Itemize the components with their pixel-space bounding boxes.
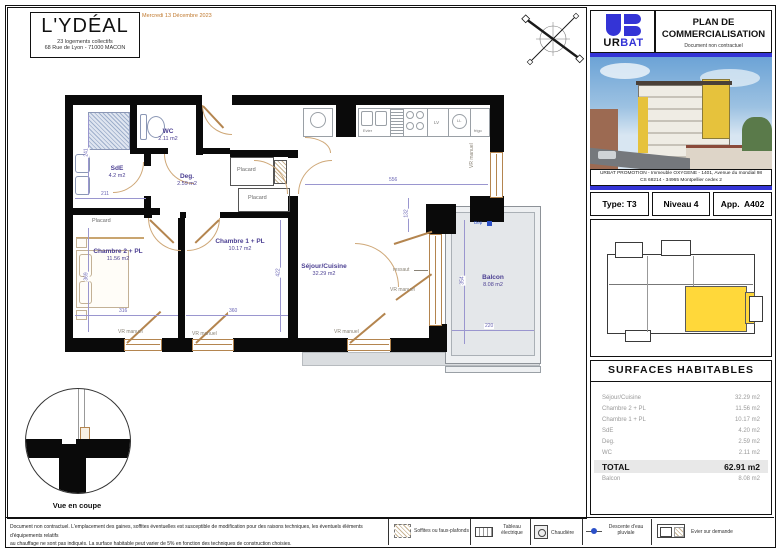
- room-label-balcon: Balcon8.08 m2: [468, 274, 518, 289]
- dimension-label: 556: [388, 178, 398, 183]
- balcony-lower-ledge: [445, 366, 541, 373]
- counter-divider: [427, 108, 428, 137]
- cooktop-burner: [416, 111, 424, 119]
- doc-title-box: PLAN DE COMMERCIALISATION Document non c…: [655, 10, 772, 53]
- downpipe-dot: [591, 528, 597, 534]
- key-room-line: [647, 256, 648, 332]
- dimension-label: 211: [100, 192, 110, 197]
- dishwasher-label: LV: [434, 121, 439, 126]
- wall: [65, 95, 202, 105]
- building-photo: [590, 57, 772, 169]
- surface-row-balcony: Balcon8.08 m2: [602, 476, 760, 487]
- cooktop-burner: [406, 111, 414, 119]
- plan-date: Mercredi 13 Décembre 2023: [142, 13, 212, 19]
- urbat-logo-icon: [606, 14, 642, 36]
- dimension-label: 132: [405, 208, 410, 218]
- vr-label: VR manuel: [334, 330, 359, 335]
- dimension-label: 354: [461, 275, 466, 285]
- section-detail-circle: [25, 388, 131, 494]
- cloud: [600, 63, 650, 79]
- sink-bowl: [361, 111, 373, 126]
- dimension-label: 369: [85, 271, 90, 281]
- downpipe-label: Dep: [474, 221, 482, 226]
- electrical-panel-legend-icon: [475, 527, 493, 537]
- key-plan-box: [590, 219, 772, 357]
- dimension-line: [75, 315, 178, 316]
- fridge-label: frigo: [474, 129, 482, 133]
- window-line: [194, 344, 232, 345]
- window-line: [349, 344, 389, 345]
- placard-label: Placard: [237, 167, 256, 173]
- room-label-wc: WC2.11 m2: [148, 128, 188, 143]
- key-wing: [615, 242, 643, 258]
- boiler-legend-icon: [534, 525, 548, 539]
- downpipe-marker: [487, 221, 492, 226]
- vr-label: VR manuel: [470, 143, 475, 168]
- boiler-icon: [310, 112, 326, 128]
- wall: [490, 95, 504, 152]
- sink-basin: [660, 527, 672, 537]
- section-frame-line: [78, 389, 79, 439]
- building-roof: [636, 81, 732, 85]
- wall: [65, 95, 73, 352]
- counter-divider: [448, 108, 449, 137]
- cooktop-burner: [416, 122, 424, 130]
- wall: [162, 338, 193, 352]
- wall: [220, 212, 290, 218]
- section-slab: [26, 439, 130, 458]
- sink-bowl: [375, 111, 387, 126]
- title-block: L'YDÉAL 23 logements collectifs 68 Rue d…: [30, 12, 140, 58]
- logo-b-shape: [624, 26, 641, 36]
- wall: [233, 338, 348, 352]
- counter-divider: [470, 108, 471, 137]
- dimension-line: [305, 184, 488, 185]
- room-label-ch1: Chambre 1 + PL10.17 m2: [202, 238, 278, 253]
- wall: [470, 196, 504, 222]
- key-plan-drawing: [597, 226, 765, 350]
- boiler-circle: [538, 529, 546, 537]
- window-line: [126, 344, 160, 345]
- logo-box: URBAT: [590, 10, 655, 53]
- vr-label: VR manuel: [118, 330, 143, 335]
- key-corridor-line: [609, 284, 753, 285]
- dimension-label: 360: [228, 309, 238, 314]
- wall: [65, 338, 125, 352]
- ressaut-label: ressaut: [393, 268, 409, 273]
- legend-label: Evier sur demande: [691, 529, 761, 535]
- nightstand: [76, 238, 87, 248]
- unit-app-cell: App. A402: [713, 192, 772, 216]
- compass-icon: [518, 10, 588, 68]
- unit-type-cell: Type: T3: [590, 192, 649, 216]
- sink-label: Evier: [363, 129, 372, 133]
- legend-divider: [582, 519, 583, 545]
- urbat-wordmark: URBAT: [591, 37, 656, 49]
- dimension-line: [75, 198, 146, 199]
- legend-divider: [530, 519, 531, 545]
- surface-total-row: TOTAL 62.91 m2: [594, 460, 768, 473]
- photo-caption: URBAT PROMOTION - Immeuble OXYGENE - 140…: [590, 169, 772, 186]
- legend-label: Chaudière: [551, 530, 581, 536]
- wall: [429, 324, 447, 350]
- building-yellow-wing: [638, 97, 648, 153]
- surfaces-title: SURFACES HABITABLES: [591, 361, 771, 382]
- section-wall-stem: [59, 458, 86, 494]
- wall: [144, 152, 151, 166]
- logo-b-shape: [624, 14, 641, 24]
- wall: [130, 105, 137, 150]
- vr-label: VR manuel: [390, 288, 415, 293]
- key-wing: [661, 240, 691, 256]
- dimension-label: 422: [277, 267, 282, 277]
- doc-note: Document non contractuel: [656, 43, 771, 49]
- key-unit-highlight: [685, 286, 747, 332]
- window-line: [435, 236, 436, 324]
- room-label-sejour: Séjour/Cuisine32.29 m2: [288, 263, 360, 278]
- legend-label: Tableau électrique: [497, 524, 527, 537]
- cooktop-burner: [406, 122, 414, 130]
- pillow: [79, 281, 92, 304]
- surface-row: Séjour/Cuisine32.29 m2: [602, 395, 760, 406]
- washer-label: LL: [457, 119, 461, 123]
- ressaut-leader: [414, 270, 428, 271]
- page-title: L'YDÉAL: [31, 15, 139, 38]
- footer-separator: [6, 517, 774, 518]
- dimension-label: 241: [85, 147, 90, 157]
- dimension-label: 316: [118, 309, 128, 314]
- wall: [232, 95, 504, 105]
- legend-divider: [651, 519, 652, 545]
- car: [598, 151, 616, 159]
- surface-row: SdE4.20 m2: [602, 428, 760, 439]
- separator-bar: [590, 186, 772, 190]
- soffit-swatch-icon: [394, 524, 411, 538]
- room-label-deg: Deg.2.59 m2: [162, 173, 212, 188]
- greenery: [742, 117, 772, 151]
- dimension-line: [186, 315, 288, 316]
- room-label-ch2: Chambre 2 + PL11.56 m2: [82, 248, 154, 263]
- shower-tray: [88, 112, 130, 150]
- footer-disclaimer: Document non contractuel. L'emplacement …: [10, 523, 382, 549]
- wall: [336, 105, 356, 137]
- legend-divider: [388, 519, 389, 545]
- section-caption: Vue en coupe: [25, 501, 129, 510]
- dimension-label: 220: [484, 324, 494, 329]
- legend-label: Soffites ou faux-plafonds: [414, 528, 470, 534]
- surface-row: Deg.2.59 m2: [602, 439, 760, 450]
- project-address: 68 Rue de Lyon - 71000 MACON: [31, 45, 139, 51]
- placard-label: Placard: [92, 218, 111, 224]
- sink-legend-icon: [657, 524, 685, 538]
- doc-title: PLAN DE COMMERCIALISATION: [656, 17, 771, 41]
- window-line: [496, 154, 497, 196]
- drainer-hatch: [391, 109, 403, 136]
- sink-drainer: [674, 527, 684, 537]
- vr-label: VR manuel: [192, 332, 217, 337]
- wall: [230, 150, 290, 157]
- unit-level-cell: Niveau 4: [652, 192, 710, 216]
- counter-divider: [403, 108, 404, 137]
- key-unit-balcony: [749, 296, 763, 322]
- wall: [196, 148, 230, 154]
- legend-label: Descente d'eau pluviale: [606, 524, 646, 537]
- toilet-icon: [140, 114, 147, 140]
- dimension-line: [452, 330, 534, 331]
- logo-u-shape: [606, 14, 621, 36]
- legend-divider: [470, 519, 471, 545]
- placard-label: Placard: [248, 195, 267, 201]
- wall: [426, 204, 456, 234]
- room-label-sde: SdE4.2 m2: [92, 165, 142, 180]
- downpipe-legend-icon: [586, 531, 602, 532]
- building-yellow-tower: [702, 79, 730, 139]
- surface-row: Chambre 2 + PL11.56 m2: [602, 406, 760, 417]
- surface-row: Chambre 1 + PL10.17 m2: [602, 417, 760, 428]
- section-slab-notch: [62, 439, 76, 444]
